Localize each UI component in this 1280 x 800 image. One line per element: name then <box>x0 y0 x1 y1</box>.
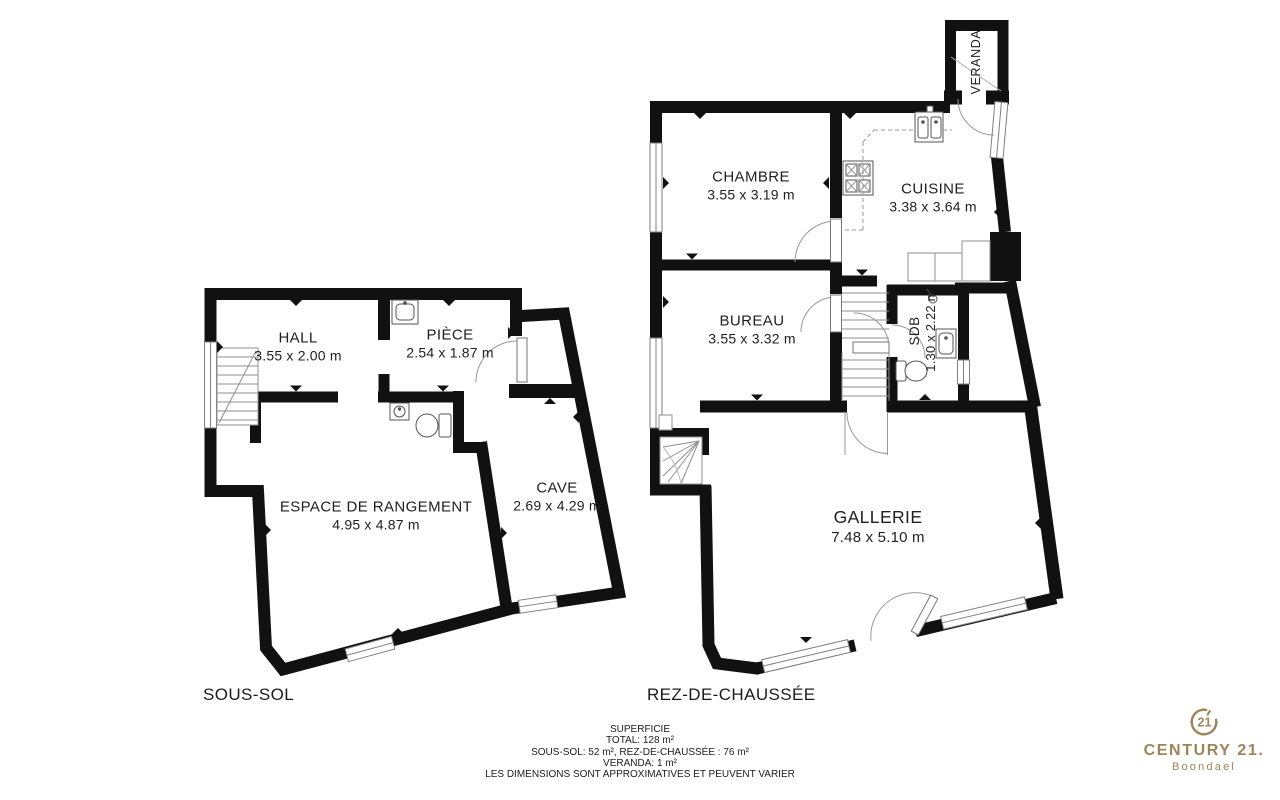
room-name: CUISINE <box>889 179 976 198</box>
room-label-cave: CAVE 2.69 x 4.29 m <box>513 478 600 515</box>
summary-floors: SOUS-SOL: 52 m², REZ-DE-CHAUSSÉE : 76 m² <box>485 747 795 758</box>
room-label-espace-de-rangement: ESPACE DE RANGEMENT 4.95 x 4.87 m <box>280 497 472 534</box>
toilet-icon <box>416 414 451 437</box>
century21-agency-text: Boondael <box>1142 761 1266 773</box>
window <box>518 595 558 613</box>
summary-total: TOTAL: 128 m² <box>485 735 795 746</box>
window <box>990 102 1008 159</box>
window <box>650 143 662 232</box>
stove-icon <box>843 161 873 195</box>
room-name: CHAMBRE <box>707 167 794 186</box>
rez-de-chaussee-plan <box>650 26 1057 673</box>
room-label-chambre: CHAMBRE 3.55 x 3.19 m <box>707 167 794 204</box>
floorplan-drawing <box>0 0 1280 800</box>
winder-stairs <box>660 437 702 484</box>
room-name: BUREAU <box>708 311 795 330</box>
room-dims: 1.30 x 2.22 m <box>923 290 940 371</box>
window <box>762 640 851 673</box>
room-label-bureau: BUREAU 3.55 x 3.32 m <box>708 311 795 348</box>
bureau-door <box>801 295 842 332</box>
room-dims: 3.55 x 3.19 m <box>707 187 794 205</box>
room-dims: 3.55 x 3.32 m <box>708 331 795 349</box>
room-label-veranda: VERANDA <box>968 30 984 95</box>
room-name: ESPACE DE RANGEMENT <box>280 497 472 516</box>
gallerie-landing-door <box>845 412 888 455</box>
floorplan-page: HALL 3.55 x 2.00 m PIÈCE 2.54 x 1.87 m E… <box>0 0 1280 800</box>
gallerie-entry-door <box>853 593 938 652</box>
room-name: HALL <box>254 328 341 347</box>
room-dims: 4.95 x 4.87 m <box>280 517 472 535</box>
room-label-sdb: SDB 1.30 x 2.22 m <box>906 290 940 371</box>
room-name: PIÈCE <box>406 325 493 344</box>
room-name: CAVE <box>513 478 600 497</box>
sink-icon <box>392 300 418 324</box>
summary-title: SUPERFICIE <box>485 724 795 735</box>
room-dims: 3.55 x 2.00 m <box>254 348 341 366</box>
room-name: VERANDA <box>968 30 984 95</box>
radiator-icon <box>659 415 672 430</box>
room-label-cuisine: CUISINE 3.38 x 3.64 m <box>889 179 976 216</box>
room-label-hall: HALL 3.55 x 2.00 m <box>254 328 341 365</box>
century21-brand-text: CENTURY 21. <box>1142 742 1266 760</box>
century21-seal-icon: 21 <box>1184 701 1224 741</box>
window <box>958 360 970 384</box>
window <box>205 342 217 428</box>
floor-label-rez-de-chaussee: REZ-DE-CHAUSSÉE <box>647 685 815 705</box>
chambre-door <box>795 219 842 262</box>
small-sink-icon <box>390 403 409 420</box>
room-dims: 3.38 x 3.64 m <box>889 199 976 217</box>
kitchen-counter <box>908 241 990 281</box>
stair-hall-door <box>853 313 889 353</box>
window <box>941 597 1028 629</box>
room-name: GALLERIE <box>831 506 925 528</box>
room-dims: 7.48 x 5.10 m <box>831 529 925 548</box>
summary-disclaimer: LES DIMENSIONS SONT APPROXIMATIVES ET PE… <box>485 769 795 780</box>
floor-label-sous-sol: SOUS-SOL <box>203 685 294 705</box>
room-label-piece: PIÈCE 2.54 x 1.87 m <box>406 325 493 362</box>
surface-summary: SUPERFICIE TOTAL: 128 m² SOUS-SOL: 52 m²… <box>485 724 795 780</box>
wall-corner-block <box>990 232 1021 281</box>
svg-text:21: 21 <box>1198 716 1212 730</box>
summary-veranda: VERANDA: 1 m² <box>485 758 795 769</box>
room-label-gallerie: GALLERIE 7.48 x 5.10 m <box>831 506 925 548</box>
century21-logo: 21 CENTURY 21. Boondael <box>1142 701 1266 773</box>
room-dims: 2.54 x 1.87 m <box>406 345 493 363</box>
basement-stairs <box>217 348 258 425</box>
room-dims: 2.69 x 4.29 m <box>513 498 600 516</box>
room-name: SDB <box>906 290 923 371</box>
